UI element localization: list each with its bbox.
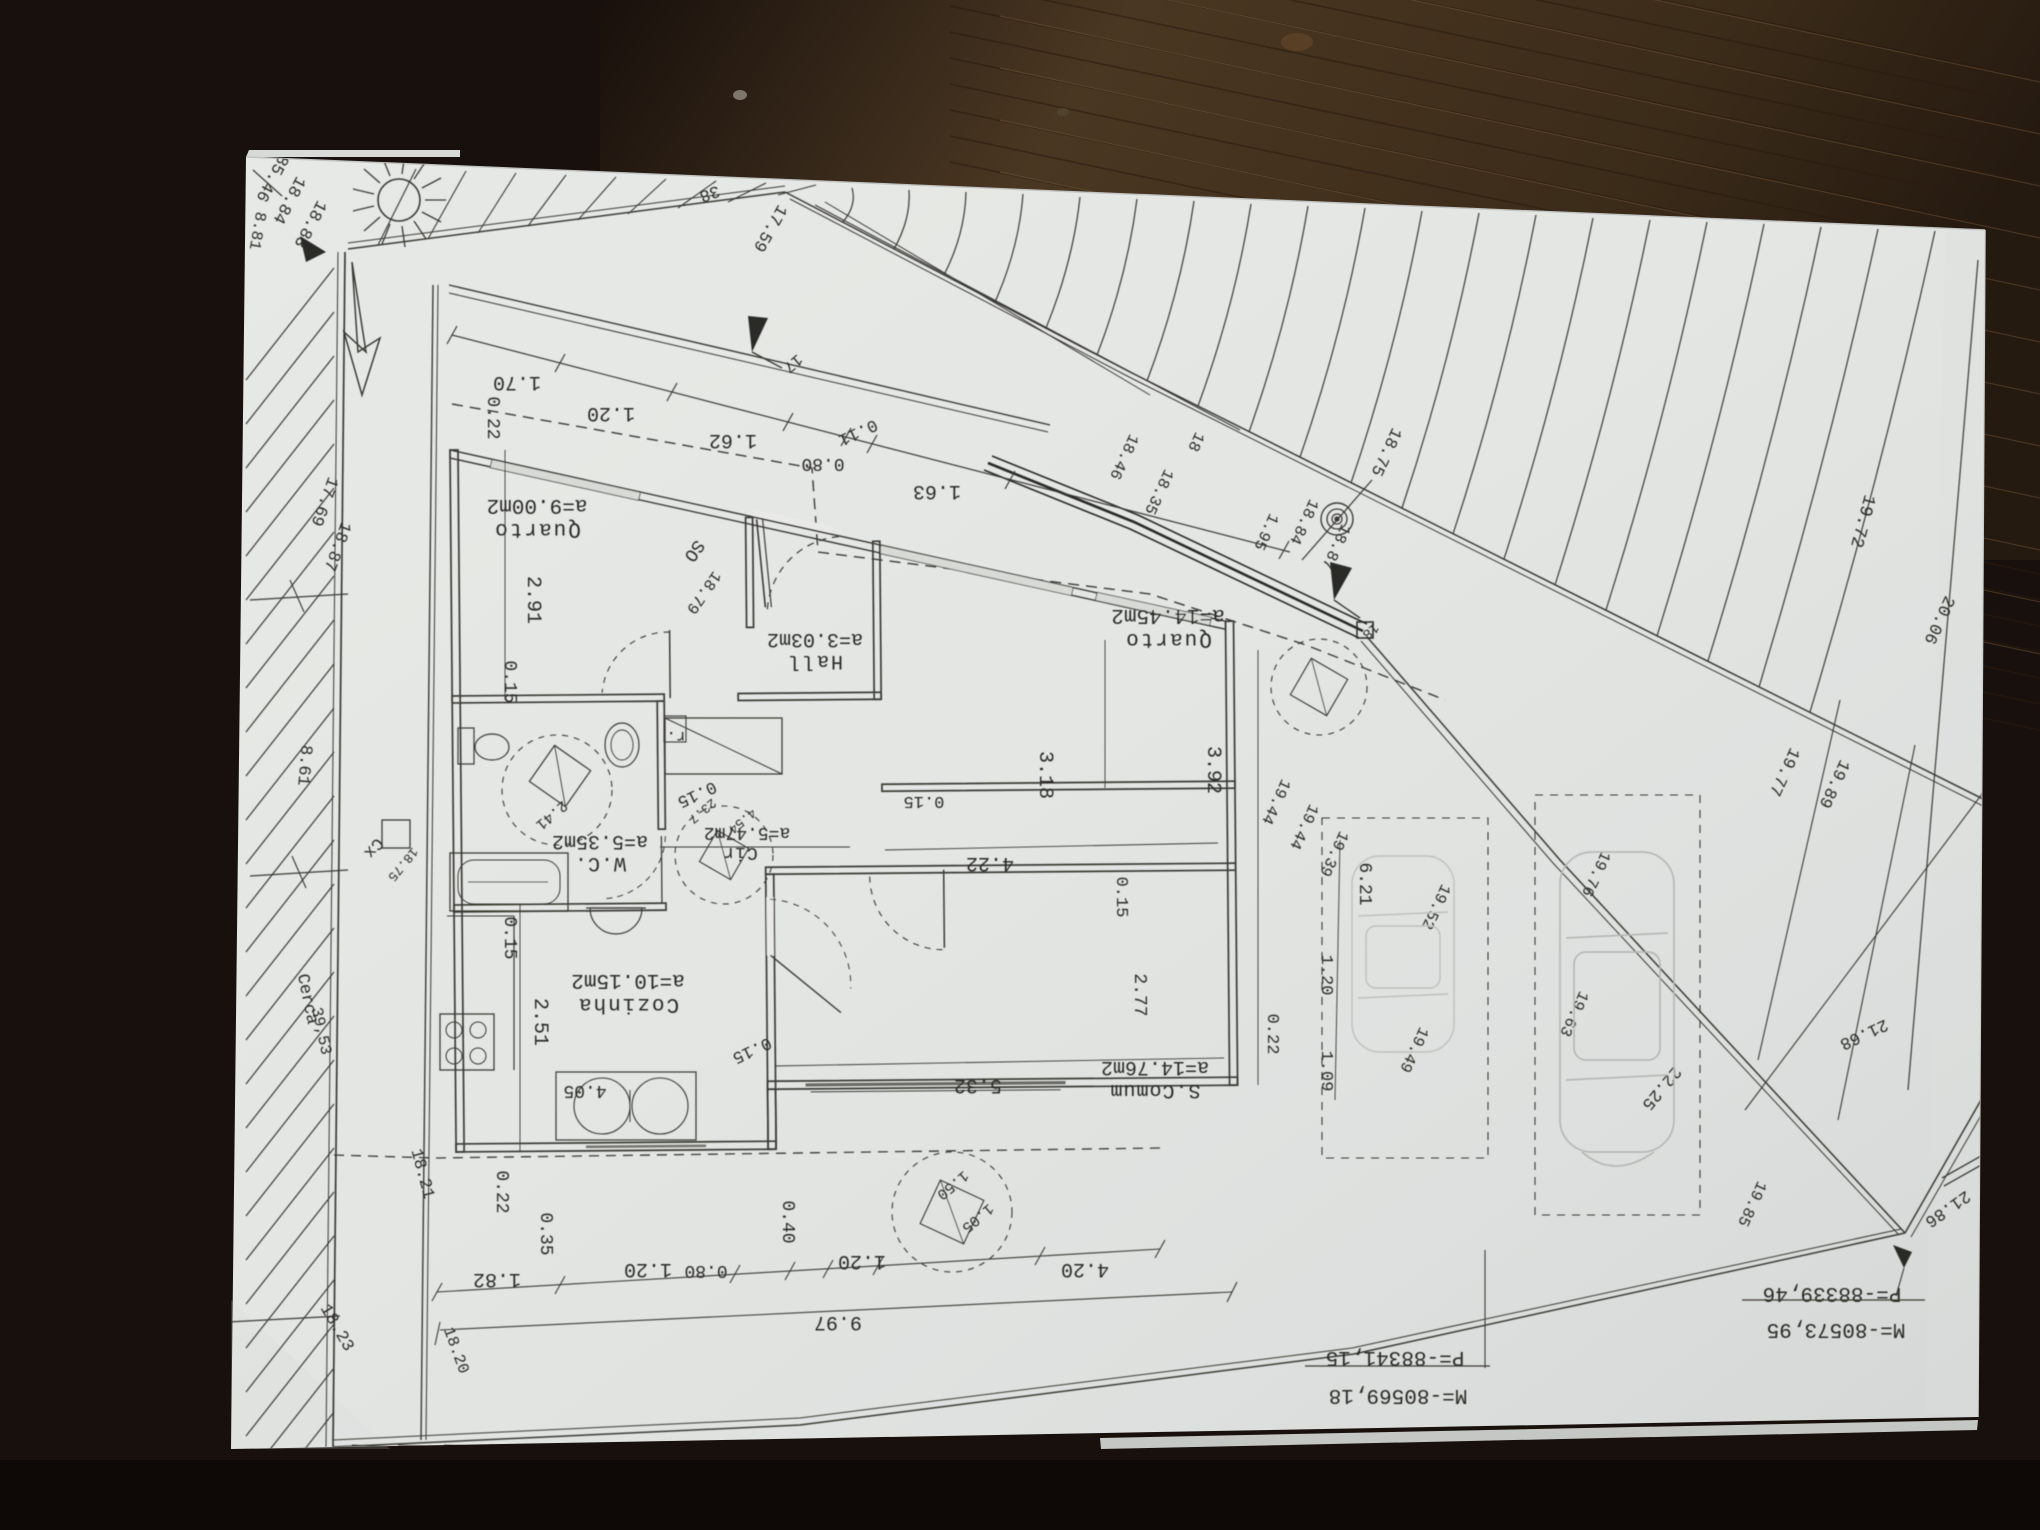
svg-text:M=-80569,18: M=-80569,18 — [1329, 1383, 1468, 1406]
svg-text:0.22: 0.22 — [1262, 1014, 1281, 1055]
svg-text:0.80: 0.80 — [801, 453, 844, 473]
svg-text:2.77: 2.77 — [1129, 973, 1149, 1016]
svg-text:0.15: 0.15 — [1111, 877, 1130, 918]
svg-text:0.22: 0.22 — [491, 1170, 511, 1213]
svg-text:M=-80573,95: M=-80573,95 — [1767, 1317, 1906, 1340]
svg-text:S.Comum: S.Comum — [1109, 1078, 1200, 1101]
svg-text:4.22: 4.22 — [966, 851, 1014, 874]
svg-text:5.32: 5.32 — [954, 1073, 1002, 1096]
svg-text:1.20: 1.20 — [587, 401, 635, 424]
svg-text:4.05: 4.05 — [563, 1080, 606, 1100]
svg-text:1.09: 1.09 — [1316, 1051, 1335, 1092]
svg-text:P=-88341,15: P=-88341,15 — [1326, 1345, 1465, 1368]
svg-text:a=5.47m2: a=5.47m2 — [704, 822, 790, 842]
svg-text:0.15: 0.15 — [499, 916, 519, 959]
svg-text:1.20: 1.20 — [1316, 955, 1335, 996]
svg-text:1.82: 1.82 — [473, 1267, 521, 1290]
svg-text:1.20: 1.20 — [624, 1257, 672, 1280]
svg-text:1.63: 1.63 — [913, 479, 961, 502]
svg-text:0.35: 0.35 — [535, 1212, 555, 1255]
svg-text:a=3.03m2: a=3.03m2 — [767, 627, 863, 650]
svg-text:3.18: 3.18 — [1033, 751, 1056, 799]
svg-text:2.51: 2.51 — [528, 998, 551, 1046]
svg-text:Cir: Cir — [722, 842, 757, 862]
svg-text:2.91: 2.91 — [521, 576, 544, 624]
svg-text:a=14.45m2: a=14.45m2 — [1111, 603, 1224, 626]
svg-text:9.97: 9.97 — [814, 1310, 862, 1333]
svg-text:1.70: 1.70 — [493, 370, 541, 393]
svg-text:3.92: 3.92 — [1201, 746, 1224, 794]
svg-text:W.C.: W.C. — [574, 851, 626, 874]
svg-text:1.62: 1.62 — [709, 428, 757, 451]
svg-text:0.15: 0.15 — [499, 660, 519, 703]
svg-text:Quarto: Quarto — [493, 517, 581, 540]
svg-text:Cozinha: Cozinha — [577, 992, 679, 1015]
svg-text:0.80: 0.80 — [684, 1260, 727, 1280]
svg-text:4.20: 4.20 — [1061, 1257, 1109, 1280]
svg-text:0.15: 0.15 — [904, 791, 945, 810]
svg-text:a=10.15m2: a=10.15m2 — [571, 968, 684, 991]
svg-text:Quarto: Quarto — [1124, 627, 1212, 650]
svg-text:a=9.00m2: a=9.00m2 — [487, 493, 588, 516]
svg-text:8.61: 8.61 — [292, 744, 314, 786]
svg-text:1.20: 1.20 — [838, 1249, 886, 1272]
svg-text:0.40: 0.40 — [777, 1200, 797, 1243]
svg-text:a=5.35m2: a=5.35m2 — [552, 829, 648, 852]
svg-text:Hall: Hall — [787, 649, 843, 672]
svg-text:r.: r. — [666, 727, 685, 745]
svg-text:0.22: 0.22 — [482, 396, 502, 439]
